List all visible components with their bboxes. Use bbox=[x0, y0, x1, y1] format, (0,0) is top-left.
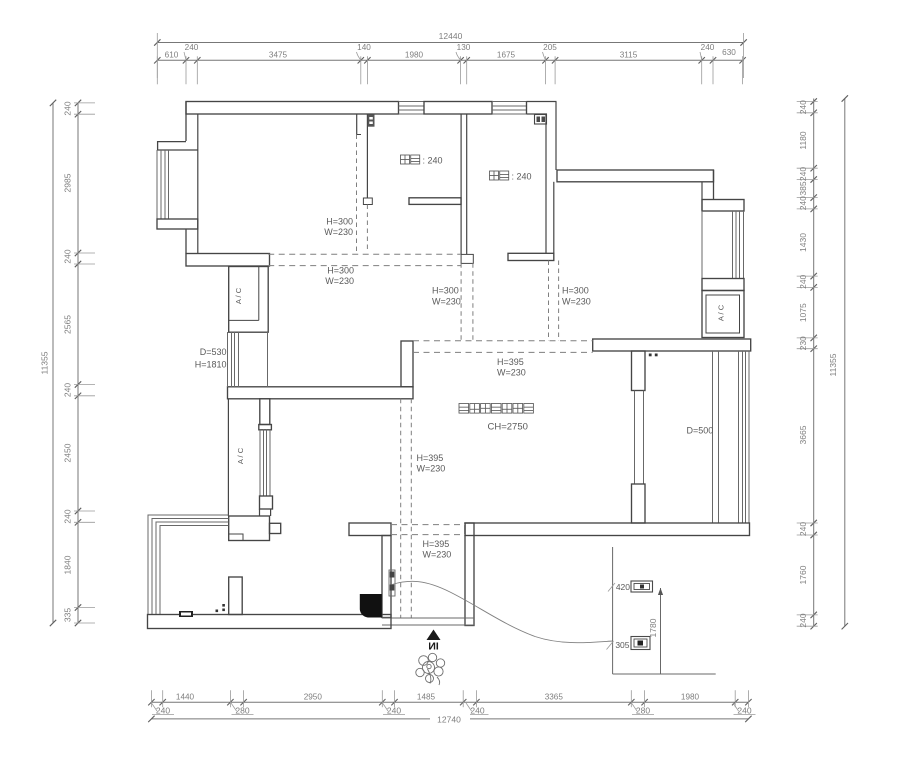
svg-text:1180: 1180 bbox=[798, 131, 808, 150]
svg-text:3475: 3475 bbox=[269, 51, 288, 60]
svg-text:12740: 12740 bbox=[437, 715, 461, 725]
svg-text:3665: 3665 bbox=[798, 425, 808, 444]
svg-text:IN: IN bbox=[428, 641, 439, 653]
svg-text:W=230: W=230 bbox=[417, 464, 446, 474]
svg-text:240: 240 bbox=[63, 509, 73, 523]
svg-text:385: 385 bbox=[798, 181, 808, 195]
svg-text:230: 230 bbox=[798, 336, 808, 350]
svg-text:240: 240 bbox=[798, 274, 808, 288]
svg-text:A / C: A / C bbox=[234, 287, 243, 304]
svg-text:1780: 1780 bbox=[648, 618, 658, 637]
svg-text:2565: 2565 bbox=[63, 315, 73, 334]
svg-text:1440: 1440 bbox=[176, 693, 195, 702]
svg-text:W=230: W=230 bbox=[432, 297, 461, 307]
svg-text:1430: 1430 bbox=[798, 233, 808, 252]
svg-text:1980: 1980 bbox=[405, 51, 424, 60]
svg-text:CH=2750: CH=2750 bbox=[488, 422, 528, 433]
svg-text:H=395: H=395 bbox=[417, 453, 444, 463]
svg-text:240: 240 bbox=[63, 383, 73, 397]
svg-text:240: 240 bbox=[387, 706, 401, 716]
svg-text:12440: 12440 bbox=[439, 31, 463, 41]
svg-text:W=230: W=230 bbox=[497, 368, 526, 378]
svg-text:1485: 1485 bbox=[417, 693, 436, 702]
svg-text:W=230: W=230 bbox=[324, 227, 353, 237]
svg-text:240: 240 bbox=[798, 167, 808, 181]
svg-text:: 240: : 240 bbox=[512, 172, 532, 182]
svg-text:280: 280 bbox=[235, 706, 249, 716]
svg-text:H=300: H=300 bbox=[562, 286, 589, 296]
svg-text:2985: 2985 bbox=[63, 173, 73, 192]
svg-text:240: 240 bbox=[798, 522, 808, 536]
svg-text:11355: 11355 bbox=[828, 353, 838, 376]
svg-text:240: 240 bbox=[737, 706, 751, 716]
svg-text:H=395: H=395 bbox=[497, 357, 524, 367]
svg-text:130: 130 bbox=[457, 43, 471, 52]
svg-text:240: 240 bbox=[798, 196, 808, 210]
svg-text:3365: 3365 bbox=[545, 693, 564, 702]
svg-text:1675: 1675 bbox=[497, 51, 516, 60]
svg-text:240: 240 bbox=[63, 249, 73, 263]
svg-text:240: 240 bbox=[185, 43, 199, 52]
svg-text:420: 420 bbox=[616, 582, 630, 592]
svg-text:240: 240 bbox=[470, 706, 484, 716]
svg-text:A / C: A / C bbox=[717, 304, 726, 321]
svg-text:H=300: H=300 bbox=[432, 286, 459, 296]
svg-text:1075: 1075 bbox=[798, 303, 808, 322]
svg-text:240: 240 bbox=[798, 613, 808, 627]
svg-text:H=395: H=395 bbox=[423, 539, 450, 549]
svg-text:305: 305 bbox=[615, 640, 629, 650]
svg-text:1980: 1980 bbox=[681, 693, 700, 702]
svg-text:H=300: H=300 bbox=[327, 266, 354, 276]
svg-text:D=500: D=500 bbox=[687, 426, 714, 436]
svg-text:A / C: A / C bbox=[236, 447, 245, 464]
svg-text:240: 240 bbox=[701, 43, 715, 52]
svg-text:240: 240 bbox=[63, 101, 73, 115]
svg-text:610: 610 bbox=[165, 51, 179, 60]
svg-text:2450: 2450 bbox=[63, 443, 73, 462]
svg-text:1840: 1840 bbox=[63, 555, 73, 574]
svg-text:H=300: H=300 bbox=[326, 217, 353, 227]
svg-text:240: 240 bbox=[798, 100, 808, 114]
svg-text:1760: 1760 bbox=[798, 565, 808, 584]
svg-text:335: 335 bbox=[63, 608, 73, 622]
svg-text:205: 205 bbox=[543, 43, 557, 52]
svg-text:11355: 11355 bbox=[40, 351, 50, 374]
svg-text:W=230: W=230 bbox=[325, 276, 354, 286]
svg-text:: 240: : 240 bbox=[423, 156, 443, 166]
svg-text:D=530: D=530 bbox=[200, 347, 227, 357]
svg-text:2950: 2950 bbox=[304, 693, 323, 702]
svg-text:630: 630 bbox=[722, 48, 736, 57]
svg-text:W=230: W=230 bbox=[423, 550, 452, 560]
svg-text:240: 240 bbox=[156, 706, 170, 716]
svg-text:140: 140 bbox=[357, 43, 371, 52]
svg-text:H=1810: H=1810 bbox=[195, 360, 227, 370]
svg-text:280: 280 bbox=[636, 706, 650, 716]
svg-text:3115: 3115 bbox=[620, 51, 638, 60]
svg-text:W=230: W=230 bbox=[562, 297, 591, 307]
